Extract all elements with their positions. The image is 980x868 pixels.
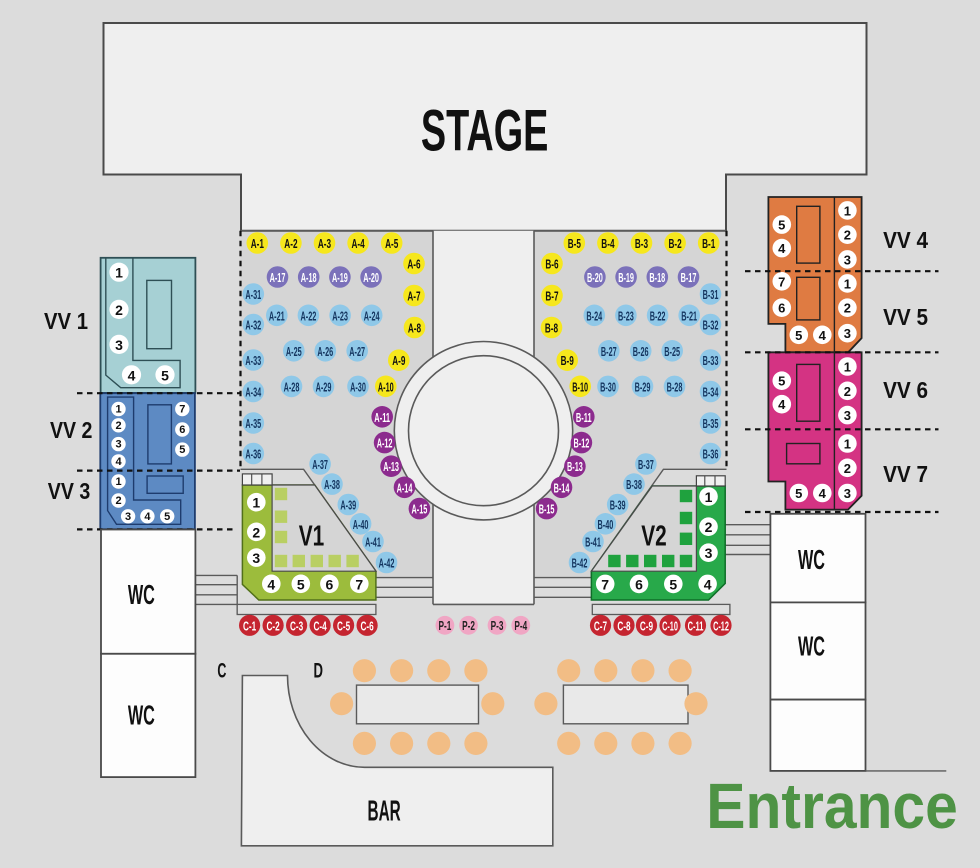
- svg-text:A-8: A-8: [408, 321, 421, 336]
- svg-text:Entrance: Entrance: [706, 770, 958, 842]
- svg-text:B-42: B-42: [572, 556, 588, 571]
- svg-text:A-33: A-33: [245, 353, 261, 368]
- svg-text:B-25: B-25: [664, 344, 680, 359]
- svg-text:B-2: B-2: [669, 236, 682, 251]
- svg-text:5: 5: [795, 486, 802, 501]
- svg-text:A-26: A-26: [317, 344, 333, 359]
- svg-text:1: 1: [844, 437, 851, 452]
- svg-text:C-5: C-5: [337, 618, 350, 633]
- svg-text:VV 7: VV 7: [883, 461, 928, 487]
- svg-text:A-31: A-31: [245, 287, 261, 302]
- svg-text:A-21: A-21: [269, 308, 285, 323]
- svg-text:A-39: A-39: [340, 498, 356, 513]
- svg-text:B-15: B-15: [539, 502, 555, 517]
- svg-text:1: 1: [705, 489, 713, 505]
- svg-text:B-18: B-18: [649, 270, 665, 285]
- svg-text:V1: V1: [299, 521, 325, 553]
- svg-text:B-37: B-37: [638, 457, 654, 472]
- svg-text:C-12: C-12: [713, 618, 729, 633]
- svg-text:A-2: A-2: [284, 236, 297, 251]
- svg-text:3: 3: [115, 337, 123, 353]
- svg-text:A-11: A-11: [374, 410, 390, 425]
- svg-text:6: 6: [635, 576, 643, 592]
- svg-text:7: 7: [778, 274, 785, 289]
- svg-text:D: D: [314, 660, 324, 683]
- svg-text:B-12: B-12: [574, 436, 590, 451]
- svg-text:B-39: B-39: [610, 498, 626, 513]
- svg-text:B-24: B-24: [586, 308, 602, 323]
- svg-text:4: 4: [704, 576, 712, 592]
- svg-text:WC: WC: [798, 630, 825, 661]
- svg-text:5: 5: [778, 374, 785, 389]
- svg-text:A-18: A-18: [301, 270, 317, 285]
- svg-text:5: 5: [161, 367, 169, 383]
- svg-text:A-29: A-29: [316, 379, 332, 394]
- svg-text:VV 3: VV 3: [48, 478, 91, 504]
- svg-text:B-4: B-4: [601, 236, 615, 251]
- svg-text:B-14: B-14: [554, 480, 570, 495]
- svg-text:B-17: B-17: [681, 270, 697, 285]
- svg-text:1: 1: [115, 476, 121, 488]
- svg-text:A-9: A-9: [392, 353, 405, 368]
- svg-text:B-21: B-21: [681, 308, 697, 323]
- svg-text:2: 2: [115, 420, 121, 432]
- svg-text:1: 1: [115, 404, 121, 416]
- svg-text:5: 5: [164, 511, 170, 523]
- svg-text:6: 6: [326, 576, 334, 592]
- svg-text:P-1: P-1: [439, 619, 452, 633]
- svg-text:WC: WC: [798, 544, 825, 575]
- svg-text:2: 2: [844, 461, 851, 476]
- svg-text:3: 3: [844, 252, 851, 267]
- svg-text:7: 7: [179, 404, 185, 416]
- svg-text:B-32: B-32: [703, 318, 719, 333]
- svg-text:B-20: B-20: [587, 270, 603, 285]
- svg-text:A-15: A-15: [412, 502, 428, 517]
- svg-text:B-34: B-34: [703, 385, 719, 400]
- svg-text:4: 4: [128, 367, 136, 383]
- svg-text:B-23: B-23: [618, 308, 634, 323]
- svg-text:VV 5: VV 5: [883, 304, 928, 330]
- svg-text:C-7: C-7: [594, 618, 607, 633]
- svg-text:BAR: BAR: [368, 795, 401, 827]
- svg-text:1: 1: [844, 360, 851, 375]
- svg-text:A-37: A-37: [312, 457, 328, 472]
- svg-text:B-26: B-26: [633, 344, 649, 359]
- svg-text:4: 4: [115, 456, 122, 468]
- svg-text:A-7: A-7: [407, 289, 420, 304]
- svg-text:B-41: B-41: [585, 535, 601, 550]
- svg-text:A-24: A-24: [364, 308, 380, 323]
- svg-text:3: 3: [844, 408, 851, 423]
- svg-text:A-28: A-28: [284, 379, 300, 394]
- svg-text:VV 6: VV 6: [883, 377, 928, 403]
- svg-text:B-29: B-29: [635, 379, 651, 394]
- svg-text:5: 5: [778, 218, 785, 233]
- svg-text:4: 4: [144, 511, 151, 523]
- svg-text:1: 1: [252, 495, 260, 511]
- svg-text:A-38: A-38: [324, 477, 340, 492]
- svg-text:3: 3: [125, 511, 131, 523]
- svg-text:1: 1: [115, 265, 123, 281]
- svg-text:5: 5: [795, 328, 802, 343]
- svg-text:3: 3: [844, 326, 851, 341]
- svg-text:B-6: B-6: [545, 257, 558, 272]
- svg-text:4: 4: [267, 576, 275, 592]
- svg-text:B-19: B-19: [618, 270, 634, 285]
- svg-text:3: 3: [115, 439, 121, 451]
- svg-text:6: 6: [778, 301, 785, 316]
- svg-text:C-9: C-9: [640, 618, 653, 633]
- svg-text:B-33: B-33: [703, 353, 719, 368]
- svg-text:B-13: B-13: [567, 459, 583, 474]
- svg-text:A-13: A-13: [383, 459, 399, 474]
- svg-text:B-31: B-31: [703, 287, 719, 302]
- svg-text:B-8: B-8: [545, 321, 558, 336]
- svg-text:B-30: B-30: [600, 379, 616, 394]
- svg-text:A-19: A-19: [332, 270, 348, 285]
- svg-text:A-36: A-36: [245, 447, 261, 462]
- svg-text:4: 4: [819, 328, 827, 343]
- svg-text:B-1: B-1: [702, 236, 715, 251]
- svg-text:A-6: A-6: [407, 257, 420, 272]
- svg-text:1: 1: [844, 203, 851, 218]
- svg-text:5: 5: [179, 444, 185, 456]
- svg-text:A-1: A-1: [251, 236, 264, 251]
- svg-text:A-25: A-25: [286, 344, 302, 359]
- svg-text:A-3: A-3: [318, 236, 331, 251]
- svg-text:2: 2: [844, 228, 851, 243]
- svg-text:A-27: A-27: [349, 344, 365, 359]
- svg-text:2: 2: [844, 301, 851, 316]
- svg-text:V2: V2: [641, 521, 667, 553]
- svg-text:A-35: A-35: [245, 416, 261, 431]
- svg-text:C-8: C-8: [617, 618, 630, 633]
- svg-text:3: 3: [252, 550, 260, 566]
- svg-text:B-28: B-28: [667, 379, 683, 394]
- svg-text:B-27: B-27: [601, 344, 617, 359]
- svg-text:A-10: A-10: [378, 379, 394, 394]
- svg-text:3: 3: [705, 545, 713, 561]
- svg-text:B-40: B-40: [598, 517, 614, 532]
- svg-text:C-10: C-10: [662, 618, 678, 633]
- svg-text:C-11: C-11: [688, 618, 704, 633]
- svg-text:B-9: B-9: [561, 353, 574, 368]
- svg-text:6: 6: [179, 424, 185, 436]
- svg-text:B-5: B-5: [568, 236, 581, 251]
- svg-text:VV 1: VV 1: [44, 308, 88, 334]
- svg-text:2: 2: [844, 384, 851, 399]
- svg-text:A-40: A-40: [353, 517, 369, 532]
- svg-text:VV 4: VV 4: [883, 227, 928, 253]
- svg-text:B-7: B-7: [545, 289, 558, 304]
- svg-text:A-23: A-23: [332, 308, 348, 323]
- svg-text:A-12: A-12: [377, 436, 393, 451]
- svg-text:B-35: B-35: [703, 416, 719, 431]
- svg-text:B-38: B-38: [626, 477, 642, 492]
- svg-text:A-20: A-20: [363, 270, 379, 285]
- svg-text:WC: WC: [128, 700, 155, 731]
- svg-text:A-42: A-42: [379, 556, 395, 571]
- svg-text:2: 2: [252, 524, 260, 540]
- svg-text:3: 3: [844, 486, 851, 501]
- svg-text:C-6: C-6: [361, 618, 374, 633]
- svg-text:P-4: P-4: [514, 619, 527, 633]
- svg-text:B-22: B-22: [650, 308, 666, 323]
- svg-text:A-30: A-30: [350, 379, 366, 394]
- svg-text:C-3: C-3: [290, 618, 303, 633]
- svg-text:B-36: B-36: [703, 447, 719, 462]
- svg-text:WC: WC: [128, 579, 155, 610]
- svg-text:A-22: A-22: [301, 308, 317, 323]
- svg-text:B-11: B-11: [576, 410, 592, 425]
- svg-text:4: 4: [778, 397, 786, 412]
- svg-text:1: 1: [844, 276, 851, 291]
- svg-text:B-3: B-3: [635, 236, 648, 251]
- svg-text:C-4: C-4: [314, 618, 328, 633]
- svg-text:A-17: A-17: [270, 270, 286, 285]
- svg-text:A-32: A-32: [245, 318, 261, 333]
- svg-text:P-3: P-3: [491, 619, 504, 633]
- svg-text:7: 7: [355, 576, 363, 592]
- svg-text:4: 4: [778, 241, 786, 256]
- svg-text:B-10: B-10: [572, 379, 588, 394]
- svg-text:C-2: C-2: [267, 618, 280, 633]
- svg-text:4: 4: [819, 486, 827, 501]
- svg-text:VV 2: VV 2: [50, 417, 93, 443]
- svg-text:A-5: A-5: [385, 236, 398, 251]
- svg-text:P-2: P-2: [462, 619, 475, 633]
- svg-text:A-34: A-34: [245, 385, 261, 400]
- svg-text:A-41: A-41: [365, 535, 381, 550]
- svg-text:C-1: C-1: [243, 618, 256, 633]
- svg-text:STAGE: STAGE: [421, 98, 549, 163]
- svg-text:7: 7: [601, 576, 609, 592]
- svg-text:C: C: [217, 660, 226, 683]
- svg-text:A-14: A-14: [397, 480, 413, 495]
- svg-text:2: 2: [115, 302, 123, 318]
- svg-text:5: 5: [297, 576, 305, 592]
- svg-text:5: 5: [669, 576, 677, 592]
- svg-text:2: 2: [115, 495, 121, 507]
- svg-text:2: 2: [705, 519, 713, 535]
- svg-text:A-4: A-4: [352, 236, 366, 251]
